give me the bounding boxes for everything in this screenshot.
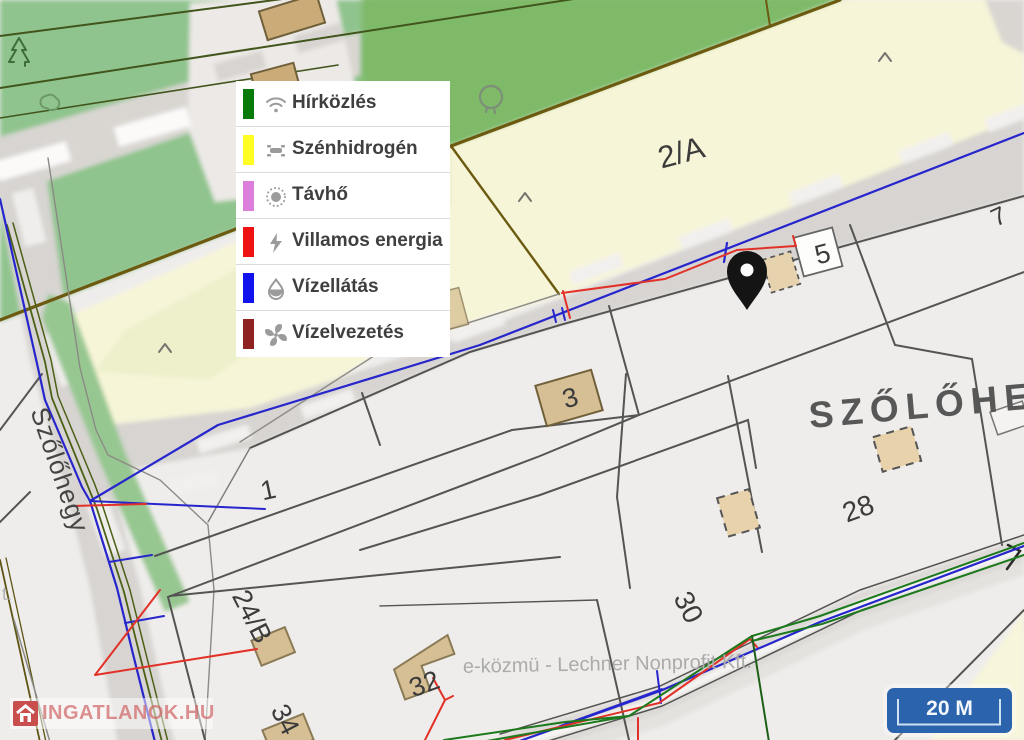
svg-text:t.: t.	[2, 584, 12, 604]
